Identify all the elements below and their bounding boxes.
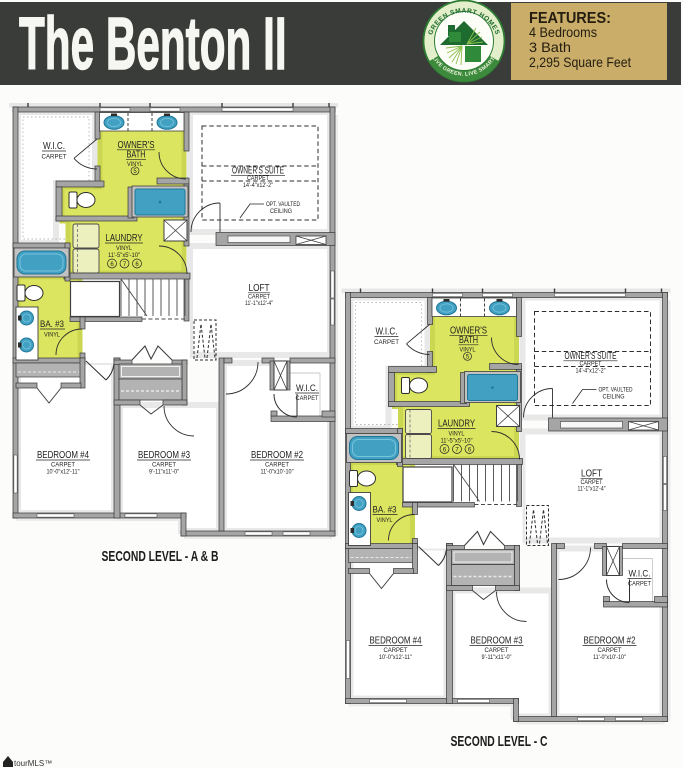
svg-text:CARPET: CARPET xyxy=(265,462,289,469)
svg-text:CARPET: CARPET xyxy=(598,647,622,654)
svg-text:BATH: BATH xyxy=(127,150,146,161)
svg-text:BEDROOM #2: BEDROOM #2 xyxy=(251,450,303,461)
svg-text:tourMLS™: tourMLS™ xyxy=(14,759,52,768)
svg-text:CARPET: CARPET xyxy=(51,462,75,469)
svg-text:The Benton II: The Benton II xyxy=(19,1,287,85)
svg-text:VINYL: VINYL xyxy=(377,517,393,524)
svg-text:BEDROOM #3: BEDROOM #3 xyxy=(138,450,190,461)
svg-text:CEILING: CEILING xyxy=(270,209,292,215)
svg-text:3 Bath: 3 Bath xyxy=(529,39,571,55)
svg-text:VINYL: VINYL xyxy=(44,332,60,339)
svg-text:W.I.C.: W.I.C. xyxy=(43,141,65,152)
svg-text:BEDROOM #3: BEDROOM #3 xyxy=(471,636,523,647)
svg-text:CARPET: CARPET xyxy=(296,396,319,402)
svg-text:11'-5"x5'-10": 11'-5"x5'-10" xyxy=(441,438,473,445)
svg-text:CEILING: CEILING xyxy=(603,395,625,401)
svg-text:LOFT: LOFT xyxy=(581,469,602,480)
svg-text:W.I.C.: W.I.C. xyxy=(376,327,398,338)
svg-text:10'-0"x12'-11": 10'-0"x12'-11" xyxy=(47,469,80,476)
svg-text:LOFT: LOFT xyxy=(249,283,270,294)
svg-text:9'-11"x11'-0": 9'-11"x11'-0" xyxy=(149,469,179,476)
svg-text:CARPET: CARPET xyxy=(42,154,67,161)
svg-text:SECOND LEVEL - C: SECOND LEVEL - C xyxy=(451,733,548,750)
svg-text:VINYL: VINYL xyxy=(449,431,465,438)
svg-text:BA. #3: BA. #3 xyxy=(373,504,397,515)
svg-text:BATH: BATH xyxy=(459,335,478,346)
svg-text:VINYL: VINYL xyxy=(116,245,132,252)
svg-text:14'-4"x12'-2": 14'-4"x12'-2" xyxy=(243,182,273,189)
svg-text:W.I.C.: W.I.C. xyxy=(296,382,318,393)
svg-text:4 Bedrooms: 4 Bedrooms xyxy=(529,24,597,40)
svg-text:CARPET: CARPET xyxy=(384,647,408,654)
svg-text:BEDROOM #4: BEDROOM #4 xyxy=(37,450,89,461)
svg-text:BA. #3: BA. #3 xyxy=(40,318,64,329)
svg-text:CARPET: CARPET xyxy=(152,462,176,469)
svg-text:9'-11"x11'-0": 9'-11"x11'-0" xyxy=(482,654,512,661)
svg-text:14'-4"x12'-2": 14'-4"x12'-2" xyxy=(576,368,606,375)
svg-text:OPT. VAULTED: OPT. VAULTED xyxy=(599,388,634,394)
svg-text:CARPET: CARPET xyxy=(374,339,399,346)
svg-text:11'-5"x5'-10": 11'-5"x5'-10" xyxy=(108,252,140,259)
svg-text:11'-1"x12'-4": 11'-1"x12'-4" xyxy=(245,300,273,307)
svg-text:10'-0"x12'-11": 10'-0"x12'-11" xyxy=(379,654,412,661)
svg-text:BEDROOM #2: BEDROOM #2 xyxy=(584,636,636,647)
svg-text:CARPET: CARPET xyxy=(580,360,602,367)
svg-text:11'-1"x12'-4": 11'-1"x12'-4" xyxy=(578,486,606,493)
svg-text:SECOND LEVEL - A & B: SECOND LEVEL - A & B xyxy=(102,548,219,565)
svg-text:LAUNDRY: LAUNDRY xyxy=(438,419,475,430)
svg-text:BEDROOM #4: BEDROOM #4 xyxy=(370,636,422,647)
svg-text:11'-0"x10'-10": 11'-0"x10'-10" xyxy=(593,654,626,661)
svg-text:LAUNDRY: LAUNDRY xyxy=(106,233,143,244)
svg-text:CARPET: CARPET xyxy=(485,647,509,654)
svg-text:CARPET: CARPET xyxy=(247,175,269,182)
svg-text:W.I.C.: W.I.C. xyxy=(629,568,651,579)
svg-text:OPT. VAULTED: OPT. VAULTED xyxy=(266,202,301,208)
svg-text:2,295 Square Feet: 2,295 Square Feet xyxy=(529,54,631,70)
svg-text:CARPET: CARPET xyxy=(628,582,651,588)
svg-text:11'-0"x10'-10": 11'-0"x10'-10" xyxy=(261,469,294,476)
